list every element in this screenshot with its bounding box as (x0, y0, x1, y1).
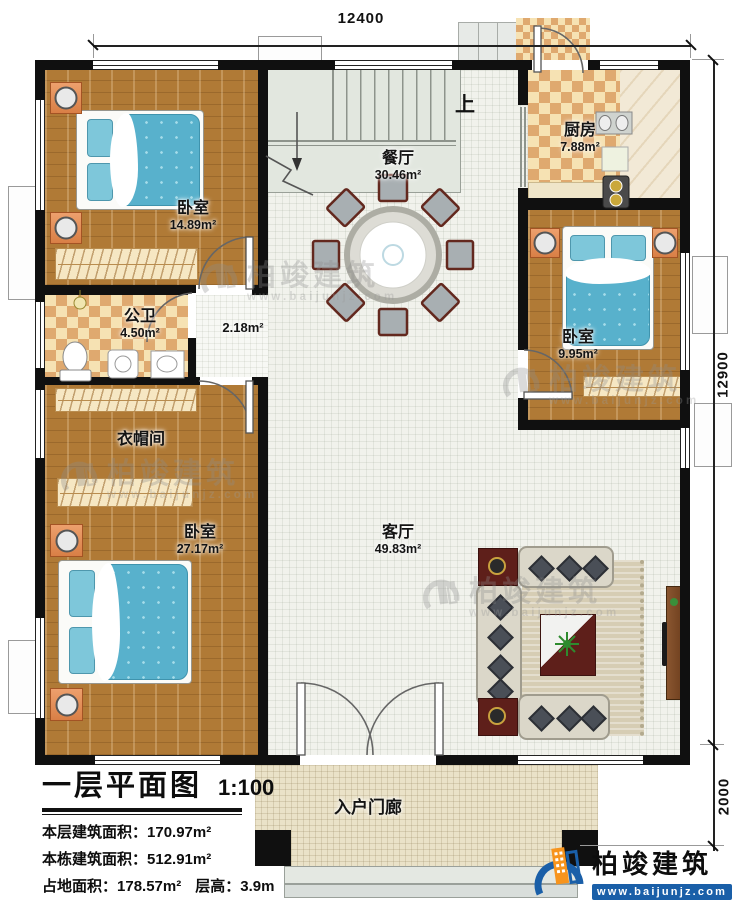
room-label-porch: 入户门廊 (288, 798, 448, 818)
dim-ext (692, 59, 724, 60)
room-label-bedroom-right: 卧室9.95m² (528, 329, 628, 362)
door-leaves (246, 26, 572, 755)
room-label-bedroom-topleft: 卧室14.89m² (143, 200, 243, 233)
coffee-table-plant (555, 632, 579, 656)
room-label-kitchen: 厨房7.88m² (530, 122, 630, 155)
title-block: 一层平面图 1:100 本层建筑面积：170.97m² 本栋建筑面积：512.9… (42, 762, 302, 896)
title-underline-thin (42, 814, 242, 815)
room-label-hallway: 2.18m² (203, 321, 283, 336)
room-label-living: 客厅49.83m² (348, 524, 448, 557)
dim-right-line (713, 60, 715, 851)
room-label-bathroom: 公卫4.50m² (95, 308, 185, 341)
tv-plant (670, 598, 678, 606)
stair-arrowhead (292, 158, 302, 171)
door-swing-arcs (147, 28, 583, 755)
dim-top-value: 12400 (331, 10, 391, 27)
side-table-lamps (489, 558, 505, 724)
company-logo: 柏竣建筑 www.baijunjz.com (532, 842, 732, 902)
logo-website: www.baijunjz.com (592, 884, 732, 900)
room-label-dining: 餐厅30.46m² (348, 150, 448, 183)
bath-lamp (74, 290, 86, 309)
dining-table-top (360, 222, 426, 288)
washing-machine (108, 350, 138, 378)
dim-top-line (93, 45, 691, 47)
room-label-bedroom-bottomleft: 卧室27.17m² (150, 524, 250, 557)
room-label-cloakroom: 衣帽间 (91, 431, 191, 449)
area-row-land-height: 占地面积：178.57m²层高：3.9m (42, 875, 302, 896)
dining-table-set (313, 175, 473, 335)
plan-scale: 1:100 (218, 775, 274, 801)
kitchen-stove (603, 176, 629, 208)
stair-up-label: 上 (455, 88, 485, 117)
title-underline-thick (42, 808, 242, 812)
area-row-building: 本栋建筑面积：512.91m² (42, 848, 302, 869)
logo-company-name: 柏竣建筑 (592, 844, 732, 881)
dim-right-upper-value: 12900 (715, 340, 732, 410)
stair-direction-arrow (266, 112, 313, 195)
floor-plan-page: 卧室14.89m² 餐厅30.46m² 厨房7.88m² 公卫4.50m² 2.… (0, 0, 750, 919)
dim-right-lower-value: 2000 (716, 767, 733, 827)
plan-title: 一层平面图 (42, 762, 202, 804)
toilet (60, 342, 91, 381)
area-row-floor: 本层建筑面积：170.97m² (42, 821, 302, 842)
logo-icon (532, 842, 586, 902)
bath-sink (151, 351, 184, 378)
